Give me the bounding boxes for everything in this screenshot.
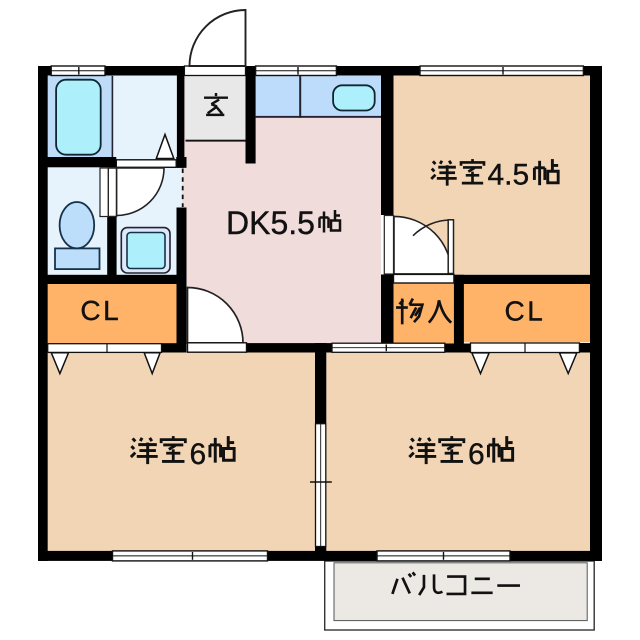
svg-text:CL: CL — [80, 295, 121, 326]
svg-text:4.5: 4.5 — [488, 159, 530, 192]
svg-text:DK5.5: DK5.5 — [226, 205, 315, 241]
svg-text:6: 6 — [190, 438, 207, 471]
svg-text:6: 6 — [468, 438, 485, 471]
svg-text:CL: CL — [505, 296, 546, 327]
